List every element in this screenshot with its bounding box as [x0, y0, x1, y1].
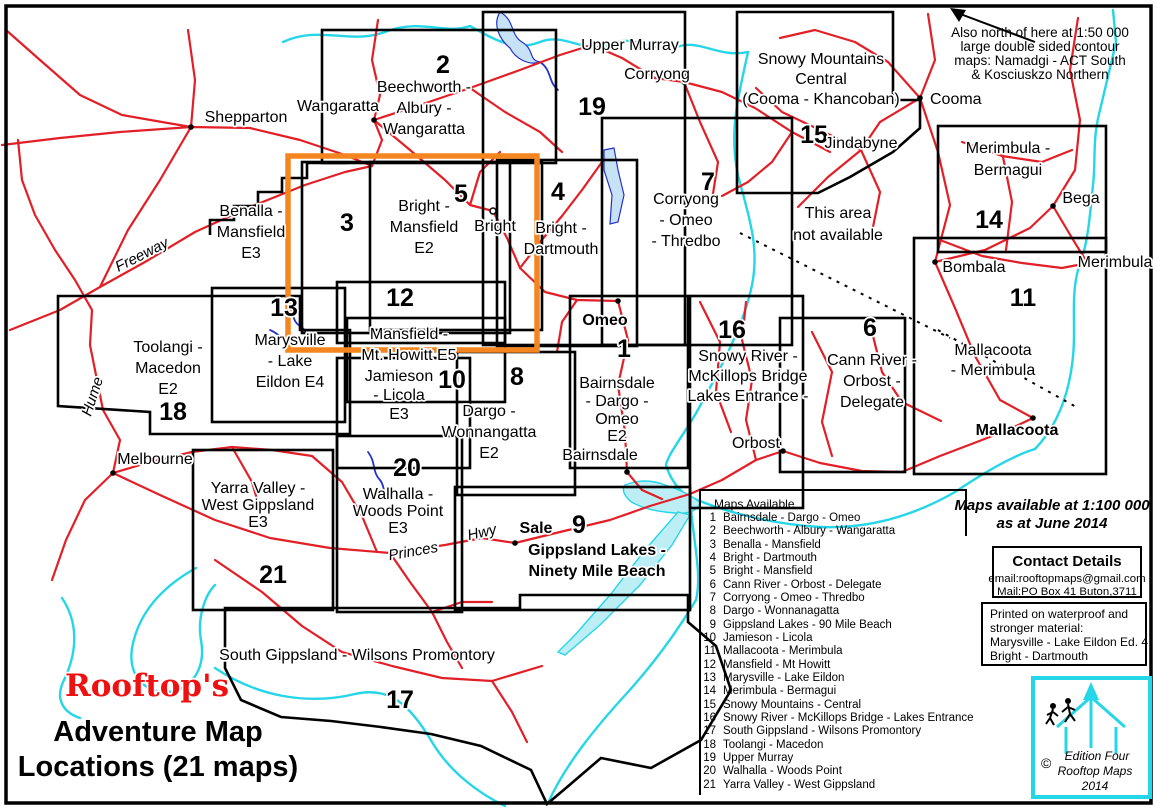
hiker-head [1065, 698, 1071, 704]
legend-item-num: 5 [710, 565, 716, 577]
legend-item-num: 1 [710, 512, 716, 524]
north-note-line: & Kosciuskzo Northern [971, 67, 1108, 82]
map-number-1: 1 [617, 335, 631, 363]
map-name-8-line: Dargo - [462, 403, 515, 420]
town-label-bega: Bega [1062, 190, 1099, 207]
map-name-2-line: Wangaratta [383, 121, 465, 138]
freeway-road [10, 166, 372, 330]
legend-item-name: Beechworth - Albury - Wangaratta [723, 525, 896, 537]
map-name-3-line: E3 [241, 245, 261, 262]
page-title-line1: Adventure Map [53, 716, 262, 748]
legend-item-num: 7 [710, 592, 716, 604]
legend-item-num: 2 [710, 525, 716, 537]
map-name-10-line: E3 [389, 406, 409, 423]
legend-item-name: Snowy River - McKillops Bridge - Lakes E… [723, 712, 974, 724]
arrow-head-icon [1083, 682, 1099, 700]
logo-box: © Edition Four Rooftop Maps 2014 [1033, 678, 1150, 797]
road [798, 98, 920, 207]
map-name-12-line: Mansfield - [370, 326, 448, 343]
legend-item-name: Walhalla - Woods Point [723, 765, 843, 777]
legend-item-name: South Gippsland - Wilsons Promontory [723, 725, 921, 737]
map-name-12-line: Mt. Howitt E5 [361, 347, 456, 364]
map-name-5-line: Bright - [398, 198, 450, 215]
map-name-1-line: E2 [607, 428, 627, 445]
map-number-4: 4 [551, 178, 565, 206]
legend-item-name: Yarra Valley - West Gippsland [723, 779, 875, 791]
road-label-freeway: Freeway [112, 234, 172, 276]
adventure-map-canvas: 1 2 3 4 5 6 7 8 9 10 11 12 13 14 15 16 1… [0, 0, 1157, 809]
map-name-11-line: - Merimbula [951, 362, 1036, 379]
map-box-7 [602, 118, 792, 345]
north-note-line: maps: Namadgi - ACT South [954, 53, 1126, 68]
town-label-merimbula: Merimbula [1078, 254, 1153, 271]
map-name-15-line: (Cooma - Khancoban) [742, 91, 899, 108]
availability-note: Maps available at 1:100 000 as at June 2… [954, 497, 1150, 532]
legend-item-num: 6 [710, 579, 716, 591]
legend-list: Maps Available 1 Bairnsdale - Dargo - Om… [703, 497, 973, 791]
north-note-line: Also north of here at 1:50 000 [951, 25, 1129, 40]
town-dot [780, 448, 786, 454]
logo-text-line: Edition Four [1065, 749, 1131, 763]
map-name-7-line: Corryong [653, 191, 719, 208]
map-name-9-line: Gippsland Lakes - [528, 542, 666, 559]
map-name-4-line: Bright - [535, 220, 587, 237]
town-label-bairnsdale: Bairnsdale [562, 447, 638, 464]
title-block: Rooftop's Adventure Map Locations (21 ma… [18, 668, 298, 783]
town-dot [188, 124, 194, 130]
legend-item-num: 11 [704, 645, 716, 657]
map-number-10: 10 [438, 366, 466, 394]
map-name-18-line: E2 [158, 381, 178, 398]
map-number-16: 16 [718, 316, 746, 344]
legend-item-num: 9 [710, 619, 716, 631]
town-dot [1030, 415, 1036, 421]
legend-item-name: Mansfield - Mt Howitt [723, 659, 831, 671]
map-name-6-line: Cann River - [827, 352, 917, 369]
town-dot [624, 469, 630, 475]
roads-layer [2, 14, 1088, 742]
town-label-sale: Sale [520, 520, 553, 537]
map-name-14-line: Bermagui [974, 162, 1042, 179]
town-dot [490, 208, 496, 214]
map-number-21: 21 [259, 561, 287, 589]
town-label-jindabyne: Jindabyne [825, 135, 898, 152]
map-number-5: 5 [454, 180, 468, 208]
road-label-princes: Princes [387, 539, 440, 565]
map-name-21-line: E3 [248, 514, 268, 531]
area-not-available-line: not available [793, 227, 883, 244]
map-name-10-line: - Licola [373, 387, 425, 404]
road [6, 30, 191, 127]
map-name-17-line: South Gippsland - Wilsons Promontory [219, 647, 495, 664]
road [188, 30, 195, 127]
legend-item-name: Jamieson - Licola [723, 632, 813, 644]
legend-item-name: Bairnsdale - Dargo - Omeo [723, 512, 860, 524]
legend-item-num: 12 [703, 659, 716, 671]
hiker-head [1050, 703, 1056, 709]
town-label-bright: Bright [474, 218, 516, 235]
map-name-20-line: Walhalla - [363, 486, 434, 503]
map-number-3: 3 [340, 209, 354, 237]
material-line: Bright - Dartmouth [990, 649, 1088, 663]
map-number-13: 13 [270, 294, 298, 322]
map-number-18: 18 [159, 398, 187, 426]
availability-line: as at June 2014 [997, 515, 1109, 532]
legend-item-name: Corryong - Omeo - Thredbo [723, 592, 865, 604]
map-number-17: 17 [386, 686, 414, 714]
legend-item-name: Marysville - Lake Eildon [723, 672, 844, 684]
legend-item-num: 13 [703, 672, 716, 684]
road [52, 473, 113, 580]
brand-title: Rooftop's [65, 668, 229, 704]
legend-item-name: Bright - Mansfield [723, 565, 812, 577]
legend-item-name: Dargo - Wonnanagatta [723, 605, 840, 617]
legend-item-num: 19 [703, 752, 716, 764]
map-name-8-line: Wonnangatta [442, 424, 537, 441]
legend-item-name: Upper Murray [723, 752, 794, 764]
town-dot [371, 117, 377, 123]
legend-item-num: 8 [710, 605, 716, 617]
legend-item-num: 10 [703, 632, 716, 644]
hiker-body [1046, 709, 1058, 725]
map-name-13-line: Eildon E4 [256, 374, 325, 391]
legend-item-num: 14 [703, 685, 716, 697]
material-line: stronger material: [990, 621, 1083, 635]
legend-item-name: Mallacoota - Merimbula [723, 645, 843, 657]
map-name-1-line: - Dargo - [585, 393, 648, 410]
legend-item-name: Snowy Mountains - Central [723, 699, 861, 711]
map-name-16-line: Snowy River - [698, 348, 798, 365]
legend-item-name: Benalla - Mansfield [723, 539, 821, 551]
town-dot [917, 95, 923, 101]
town-label-shepparton: Shepparton [205, 109, 288, 126]
copyright-symbol: © [1041, 755, 1052, 771]
lake-hume [497, 12, 540, 63]
map-name-1-line: Omeo [595, 411, 639, 428]
legend-item-name: Merimbula - Bermagui [723, 685, 836, 697]
town-label-bombala: Bombala [942, 259, 1005, 276]
map-name-15-line: Snowy Mountains [758, 51, 884, 68]
hume-highway [18, 140, 120, 473]
logo-text-line: 2014 [1081, 779, 1109, 793]
map-name-18-line: Toolangi - [133, 339, 202, 356]
north-note-line: large double sided contour [960, 39, 1120, 54]
map-name-7-line: - Thredbo [651, 233, 720, 250]
road-label-hume: Hume [78, 375, 107, 418]
map-name-5-line: Mansfield [390, 219, 458, 236]
map-number-14: 14 [975, 206, 1003, 234]
edition-boundary-dashed [740, 233, 950, 338]
road [920, 14, 935, 98]
map-name-1-line: Bairnsdale [579, 375, 655, 392]
town-label-mallacoota: Mallacoota [976, 422, 1059, 439]
legend-item-num: 20 [703, 765, 716, 777]
map-number-2: 2 [436, 51, 450, 79]
map-name-18-line: Macedon [135, 360, 201, 377]
road [470, 152, 500, 205]
legend-item-num: 15 [703, 699, 716, 711]
legend-item-name: Toolangi - Macedon [723, 739, 823, 751]
highlight-rectangle [288, 156, 537, 350]
map-number-20: 20 [393, 454, 421, 482]
map-number-12: 12 [386, 284, 414, 312]
town-label-omeo: Omeo [582, 312, 628, 329]
map-number-6: 6 [863, 314, 877, 342]
map-name-6-line: Orbost - [843, 373, 901, 390]
map-number-9: 9 [572, 511, 586, 539]
map-name-6-line: Delegate [840, 394, 904, 411]
map-name-16-line: McKillops Bridge [688, 368, 807, 385]
map-name-15-line: Central [795, 71, 847, 88]
map-name-4-line: Dartmouth [524, 241, 599, 258]
legend-header: Maps Available [714, 497, 795, 511]
contact-box: Contact Details email:rooftopmaps@gmail.… [988, 547, 1145, 598]
town-dot [512, 540, 518, 546]
legend-item-name: Bright - Dartmouth [723, 552, 817, 564]
map-name-14-line: Merimbula - [966, 140, 1050, 157]
map-number-19: 19 [578, 93, 606, 121]
area-not-available-line: This area [805, 205, 872, 222]
map-name-10-line: Jamieson [365, 368, 433, 385]
map-name-20-line: E3 [388, 520, 408, 537]
contact-email: email:rooftopmaps@gmail.com [988, 573, 1145, 585]
map-name-3-line: Benalla - [219, 203, 282, 220]
page-title-line2: Locations (21 maps) [18, 751, 298, 783]
map-name-16-line: Lakes Entrance - [688, 388, 809, 405]
legend-item-num: 3 [710, 539, 716, 551]
map-name-5-line: E2 [414, 240, 434, 257]
legend-item-num: 4 [710, 552, 717, 564]
map-name-2-line: Albury - [396, 100, 451, 117]
town-dot [932, 259, 938, 265]
map-number-11: 11 [1010, 284, 1037, 312]
contact-mail: Mail:PO Box 41 Buton,3711 [997, 586, 1137, 598]
map-name-7-line: - Omeo [659, 212, 712, 229]
map-name-3-line: Mansfield [217, 224, 285, 241]
map-name-8-line: E2 [479, 445, 499, 462]
town-label-cooma: Cooma [930, 91, 982, 108]
town-label-orbost: Orbost [732, 435, 781, 452]
material-line: Marysville - Lake Eildon Ed. 4 [990, 635, 1148, 649]
map-name-21-line: Yarra Valley - [211, 480, 306, 497]
map-name-13-line: - Lake [268, 353, 313, 370]
map-name-13-line: Marysville [254, 332, 325, 349]
road [812, 332, 832, 456]
town-label-wangaratta: Wangaratta [297, 98, 379, 115]
hikers-icon [1046, 698, 1075, 725]
town-label-melbourne: Melbourne [117, 451, 193, 468]
map-name-11-line: Mallacoota [954, 342, 1031, 359]
town-dot [1050, 203, 1056, 209]
legend-item-num: 17 [703, 725, 716, 737]
legend-item-num: 18 [703, 739, 716, 751]
legend-item-name: Cann River - Orbost - Delegate [723, 579, 882, 591]
town-label-corryong: Corryong [624, 66, 690, 83]
map-number-8: 8 [510, 363, 524, 391]
legend-item-num: 16 [703, 712, 716, 724]
availability-line: Maps available at 1:100 000 [954, 497, 1150, 514]
map-name-19-line: Upper Murray [581, 37, 679, 54]
legend-item-name: Gippsland Lakes - 90 Mile Beach [723, 619, 892, 631]
road [492, 681, 527, 742]
town-dot [615, 298, 621, 304]
material-box: Printed on waterproof and stronger mater… [982, 603, 1148, 665]
legend-item-num: 21 [703, 779, 716, 791]
map-name-21-line: West Gippsland [202, 497, 315, 514]
road [722, 132, 792, 196]
map-name-9-line: Ninety Mile Beach [529, 563, 666, 580]
contact-header: Contact Details [1012, 553, 1121, 570]
north-note: Also north of here at 1:50 000 large dou… [950, 8, 1129, 82]
town-dot [110, 470, 116, 476]
logo-text-line: Rooftop Maps [1058, 764, 1133, 778]
map-name-2-line: Beechworth - [377, 79, 471, 96]
material-line: Printed on waterproof and [990, 607, 1128, 621]
map-page: 1 2 3 4 5 6 7 8 9 10 11 12 13 14 15 16 1… [0, 0, 1157, 809]
map-name-20-line: Woods Point [353, 503, 444, 520]
